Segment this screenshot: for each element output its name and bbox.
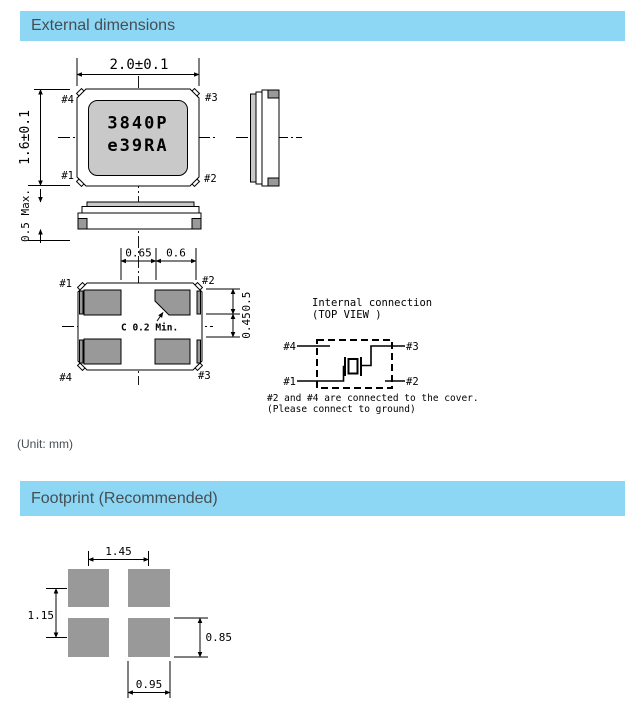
front-view: 0.5 Max.	[19, 189, 201, 243]
pin-label-2: #2	[204, 173, 217, 185]
internal-connection: Internal connection (TOP VIEW ) #4 #3 #1…	[267, 297, 479, 415]
dim-pitch-y: 1.15	[28, 589, 68, 638]
pin-label-3: #3	[205, 92, 218, 104]
chamfer-note: C 0.2 Min.	[121, 323, 178, 334]
dim-width-label: 2.0±0.1	[109, 57, 168, 73]
pin-label-1: #1	[61, 170, 74, 182]
top-view: 3840P e39RA #4 #3 #1 #2 2.0±0.1 1.6±0.1	[18, 57, 218, 186]
dim-pitch-x-label: 1.45	[105, 545, 132, 558]
dim-width: 2.0±0.1	[77, 57, 199, 86]
pad-3	[155, 339, 190, 364]
crystal-symbol	[345, 357, 361, 376]
dim-pitch-x: 1.45	[89, 545, 149, 566]
marking-line2: e39RA	[107, 136, 168, 156]
dim-height-label: 1.6±0.1	[18, 110, 33, 165]
pin-label-4: #4	[61, 94, 74, 106]
ic-pin-2: #2	[406, 376, 419, 388]
dim-fp-pad-width: 0.95	[128, 661, 170, 698]
datasheet-page: External dimensions (Unit: mm) Footprint…	[0, 0, 631, 707]
marking-line1: 3840P	[107, 114, 168, 134]
bottom-pin-3: #3	[198, 370, 211, 382]
dim-pitch-y-label: 1.15	[28, 609, 55, 622]
dim-pad-height-label: 0.5	[240, 292, 253, 312]
side-view	[251, 90, 280, 186]
footprint-pad-bl	[68, 618, 109, 657]
dim-pad-spacing: 0.65 0.6	[121, 247, 196, 281]
pad-4	[84, 339, 121, 364]
technical-drawings: 3840P e39RA #4 #3 #1 #2 2.0±0.1 1.6±0.1	[0, 0, 631, 707]
ic-pin-1: #1	[283, 376, 296, 388]
dim-pad-heights: 0.5 0.45	[206, 289, 253, 339]
internal-connection-title: Internal connection	[312, 297, 432, 309]
bottom-pin-1: #1	[59, 278, 72, 290]
footprint-view: 1.45 1.15 0.85 0.95	[28, 545, 233, 698]
ic-note-line1: #2 and #4 are connected to the cover.	[267, 393, 479, 404]
bottom-pin-2: #2	[202, 275, 215, 287]
dim-fp-pad-height-label: 0.85	[206, 631, 233, 644]
dim-fp-pad-width-label: 0.95	[136, 678, 163, 691]
internal-connection-subtitle: (TOP VIEW )	[312, 309, 382, 321]
footprint-pad-br	[128, 618, 170, 657]
ic-pin-3: #3	[406, 341, 419, 353]
footprint-pad-tl	[68, 569, 109, 607]
dim-fp-pad-height: 0.85	[174, 618, 232, 657]
dim-row-gap-label: 0.45	[240, 312, 253, 339]
footprint-pad-tr	[128, 569, 170, 607]
pad-1	[84, 290, 121, 315]
dim-gap-label: 0.65	[125, 247, 152, 260]
bottom-pin-4: #4	[59, 372, 72, 384]
ic-note-line2: (Please connect to ground)	[267, 404, 416, 415]
ic-pin-4: #4	[283, 341, 296, 353]
dim-thickness-label: 0.5 Max.	[19, 189, 32, 242]
dim-thickness: 0.5 Max.	[19, 189, 70, 243]
bottom-view: #1 #2 #4 #3 C 0.2 Min. 0.65 0.6	[59, 247, 253, 385]
dim-pad-width-label: 0.6	[166, 247, 186, 260]
